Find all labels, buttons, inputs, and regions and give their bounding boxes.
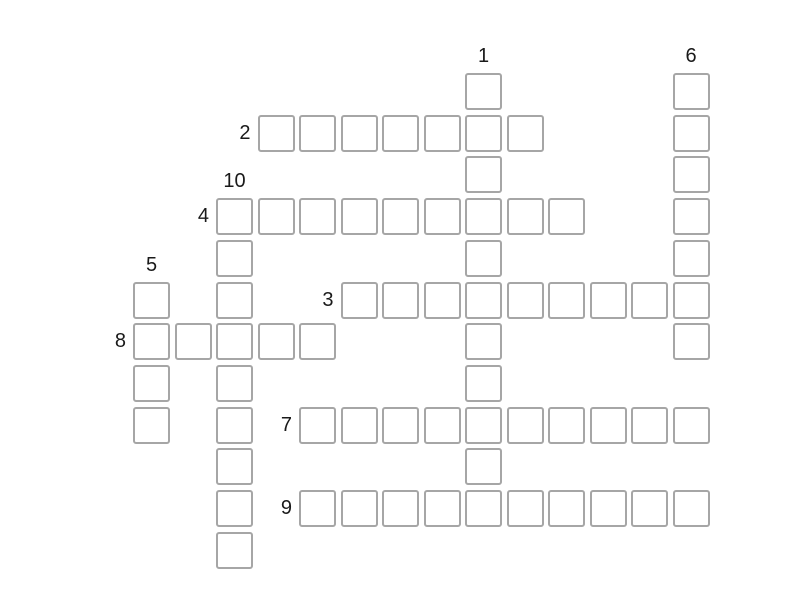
- clue-number-3: 3: [274, 282, 334, 319]
- crossword-cell[interactable]: [382, 198, 419, 235]
- crossword-cell[interactable]: [465, 407, 502, 444]
- crossword-cell[interactable]: [299, 407, 336, 444]
- crossword-cell[interactable]: [631, 407, 668, 444]
- crossword-cell[interactable]: [465, 282, 502, 319]
- crossword-cell[interactable]: [216, 282, 253, 319]
- crossword-cell[interactable]: [465, 323, 502, 360]
- crossword-cell[interactable]: [590, 490, 627, 527]
- crossword-cell[interactable]: [673, 407, 710, 444]
- crossword-cell[interactable]: [216, 448, 253, 485]
- crossword-cell[interactable]: [673, 73, 710, 110]
- crossword-cell[interactable]: [216, 532, 253, 569]
- crossword-cell[interactable]: [341, 198, 378, 235]
- crossword-cell[interactable]: [548, 282, 585, 319]
- crossword-cell[interactable]: [258, 323, 295, 360]
- crossword-cell[interactable]: [673, 490, 710, 527]
- crossword-cell[interactable]: [673, 240, 710, 277]
- crossword-cell[interactable]: [590, 407, 627, 444]
- crossword-cell[interactable]: [341, 490, 378, 527]
- crossword-cell[interactable]: [424, 407, 461, 444]
- crossword-cell[interactable]: [548, 198, 585, 235]
- crossword-cell[interactable]: [673, 156, 710, 193]
- crossword-cell[interactable]: [341, 282, 378, 319]
- clue-number-2: 2: [191, 115, 251, 152]
- crossword-cell[interactable]: [631, 282, 668, 319]
- clue-number-10: 10: [205, 168, 265, 194]
- crossword-cell[interactable]: [465, 490, 502, 527]
- crossword-cell[interactable]: [299, 490, 336, 527]
- crossword-cell[interactable]: [216, 365, 253, 402]
- clue-number-8: 8: [66, 323, 126, 360]
- crossword-cell[interactable]: [299, 115, 336, 152]
- crossword-cell[interactable]: [465, 156, 502, 193]
- crossword-cell[interactable]: [673, 115, 710, 152]
- crossword-cell[interactable]: [465, 73, 502, 110]
- crossword-cell[interactable]: [216, 407, 253, 444]
- crossword-cell[interactable]: [382, 407, 419, 444]
- crossword-cell[interactable]: [507, 407, 544, 444]
- crossword-cell[interactable]: [216, 240, 253, 277]
- crossword-cell[interactable]: [216, 323, 253, 360]
- crossword-cell[interactable]: [465, 198, 502, 235]
- crossword-cell[interactable]: [465, 365, 502, 402]
- crossword-cell[interactable]: [424, 490, 461, 527]
- crossword-cell[interactable]: [465, 115, 502, 152]
- crossword-cell[interactable]: [133, 282, 170, 319]
- crossword-cell[interactable]: [465, 240, 502, 277]
- crossword-cell[interactable]: [216, 490, 253, 527]
- crossword-cell[interactable]: [507, 490, 544, 527]
- crossword-cell[interactable]: [382, 490, 419, 527]
- crossword-cell[interactable]: [631, 490, 668, 527]
- crossword-cell[interactable]: [548, 490, 585, 527]
- crossword-cell[interactable]: [133, 407, 170, 444]
- crossword-cell[interactable]: [133, 323, 170, 360]
- clue-number-6: 6: [661, 43, 721, 69]
- crossword-cell[interactable]: [424, 282, 461, 319]
- crossword-cell[interactable]: [673, 198, 710, 235]
- crossword-cell[interactable]: [175, 323, 212, 360]
- crossword-grid: 12345678910: [0, 0, 800, 600]
- crossword-cell[interactable]: [465, 448, 502, 485]
- clue-number-4: 4: [149, 198, 209, 235]
- crossword-cell[interactable]: [673, 323, 710, 360]
- crossword-cell[interactable]: [216, 198, 253, 235]
- crossword-cell[interactable]: [548, 407, 585, 444]
- crossword-cell[interactable]: [341, 115, 378, 152]
- crossword-cell[interactable]: [424, 115, 461, 152]
- crossword-cell[interactable]: [382, 115, 419, 152]
- crossword-cell[interactable]: [424, 198, 461, 235]
- crossword-cell[interactable]: [507, 115, 544, 152]
- crossword-cell[interactable]: [258, 198, 295, 235]
- clue-number-5: 5: [122, 252, 182, 278]
- crossword-cell[interactable]: [258, 115, 295, 152]
- crossword-cell[interactable]: [341, 407, 378, 444]
- crossword-cell[interactable]: [507, 198, 544, 235]
- crossword-cell[interactable]: [133, 365, 170, 402]
- crossword-cell[interactable]: [673, 282, 710, 319]
- clue-number-1: 1: [454, 43, 514, 69]
- crossword-cell[interactable]: [299, 198, 336, 235]
- crossword-cell[interactable]: [299, 323, 336, 360]
- crossword-cell[interactable]: [590, 282, 627, 319]
- crossword-cell[interactable]: [507, 282, 544, 319]
- crossword-cell[interactable]: [382, 282, 419, 319]
